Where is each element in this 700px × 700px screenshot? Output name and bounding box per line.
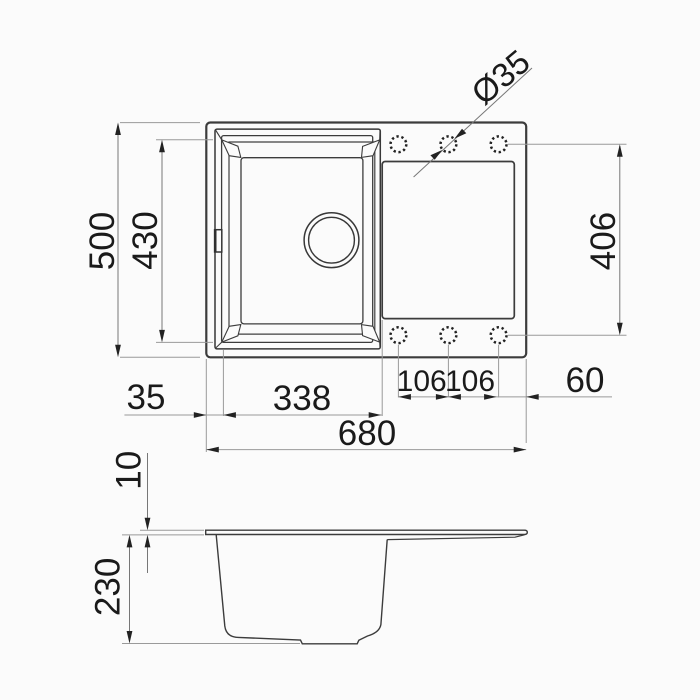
svg-text:106: 106 bbox=[445, 365, 495, 398]
svg-text:680: 680 bbox=[338, 414, 396, 453]
svg-text:430: 430 bbox=[126, 211, 165, 269]
svg-text:500: 500 bbox=[83, 212, 122, 270]
svg-text:230: 230 bbox=[88, 558, 127, 616]
svg-text:10: 10 bbox=[110, 451, 149, 490]
svg-text:106: 106 bbox=[397, 365, 447, 398]
svg-text:406: 406 bbox=[584, 212, 623, 270]
svg-text:338: 338 bbox=[273, 379, 331, 418]
svg-text:35: 35 bbox=[127, 378, 166, 417]
svg-text:60: 60 bbox=[566, 361, 605, 400]
